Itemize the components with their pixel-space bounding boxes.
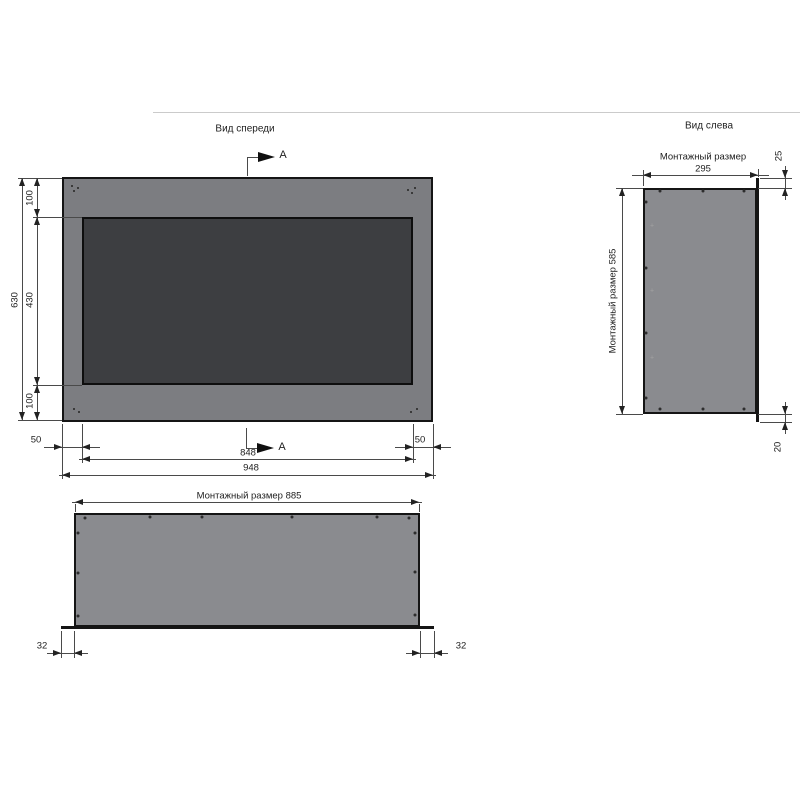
arrowhead (53, 650, 61, 656)
center-mark: + (650, 223, 654, 230)
screw-dot (408, 517, 411, 520)
dim-flange-right: 32 (456, 641, 467, 652)
screw-dot (149, 516, 152, 519)
arrowhead (75, 499, 83, 505)
arrowhead (619, 188, 625, 196)
dim-line-total-height (22, 178, 23, 420)
mount-depth-value: 295 (695, 164, 711, 175)
arrowhead (34, 385, 40, 393)
screw-mark (410, 411, 412, 413)
dim-bottom-offset: 20 (773, 442, 784, 453)
arrowhead (643, 172, 651, 178)
front-view-title: Вид спереди (215, 124, 274, 135)
dim-total-height: 630 (10, 292, 21, 308)
screw-dot (645, 201, 648, 204)
ext-line (75, 504, 76, 512)
arrowhead (411, 499, 419, 505)
arrowhead (782, 170, 788, 178)
screw-dot (702, 408, 705, 411)
screw-dot (77, 615, 80, 618)
arrowhead (19, 178, 25, 186)
screw-mark (73, 190, 75, 192)
center-mark: + (650, 288, 654, 295)
screw-dot (414, 571, 417, 574)
arrowhead (782, 188, 788, 196)
ext-line (758, 169, 759, 177)
screw-dot (414, 532, 417, 535)
dim-top-offset: 25 (774, 151, 785, 162)
dim-total-width: 948 (243, 463, 259, 474)
ext-line (433, 424, 434, 479)
arrowhead (34, 412, 40, 420)
screw-dot (659, 190, 662, 193)
arrowhead (74, 650, 82, 656)
arrowhead (433, 444, 441, 450)
dim-line-border-right (395, 447, 451, 448)
ext-line (760, 178, 792, 179)
dim-line-mount-depth (632, 175, 769, 176)
arrowhead (34, 217, 40, 225)
screw-mark (71, 185, 73, 187)
arrowhead (34, 178, 40, 186)
arrowhead (782, 406, 788, 414)
ext-line (62, 424, 63, 479)
screw-dot (291, 516, 294, 519)
ext-line (758, 414, 792, 415)
arrowhead (412, 650, 420, 656)
screw-dot (376, 516, 379, 519)
ext-line (33, 385, 82, 386)
left-view-body (643, 188, 757, 414)
dim-line-total-width (59, 475, 436, 476)
screw-dot (77, 572, 80, 575)
screw-mark (73, 408, 75, 410)
firebox-opening (82, 217, 413, 385)
screw-mark (407, 189, 409, 191)
section-arrow-icon (257, 443, 274, 453)
bottom-view-flange (61, 626, 434, 629)
arrowhead (62, 472, 70, 478)
frame-line (153, 112, 800, 113)
screw-dot (201, 516, 204, 519)
ext-line (33, 217, 82, 218)
screw-mark (411, 192, 413, 194)
technical-drawing-canvas: Вид спереди A 100 430 630 100 50 (0, 0, 800, 800)
screw-dot (414, 614, 417, 617)
bottom-view-body (74, 513, 420, 627)
ext-line (616, 414, 643, 415)
section-label-bottom: A (278, 441, 285, 453)
screw-mark (414, 187, 416, 189)
dim-line-border-left (44, 447, 100, 448)
screw-dot (645, 267, 648, 270)
mount-depth-label: Монтажный размер (660, 152, 746, 163)
screw-dot (743, 190, 746, 193)
section-label-top: A (279, 149, 286, 161)
screw-dot (77, 532, 80, 535)
dim-flange-left: 32 (37, 641, 48, 652)
arrowhead (619, 406, 625, 414)
dim-mount-height: Монтажный размер 585 (608, 249, 619, 354)
arrowhead (54, 444, 62, 450)
arrowhead (82, 456, 90, 462)
arrowhead (782, 422, 788, 430)
dim-opening-height: 430 (25, 292, 36, 308)
screw-dot (659, 408, 662, 411)
screw-dot (743, 408, 746, 411)
dim-right-border: 50 (415, 435, 426, 446)
section-arrow-icon (258, 152, 275, 162)
screw-mark (78, 411, 80, 413)
dim-left-border: 50 (31, 435, 42, 446)
arrowhead (434, 650, 442, 656)
ext-line (18, 420, 62, 421)
arrowhead (405, 444, 413, 450)
screw-dot (702, 190, 705, 193)
ext-line (419, 504, 420, 512)
screw-dot (645, 332, 648, 335)
ext-line (643, 170, 644, 186)
arrowhead (34, 209, 40, 217)
arrowhead (425, 472, 433, 478)
screw-dot (645, 397, 648, 400)
dim-top-border: 100 (25, 190, 36, 206)
dim-opening-width: 848 (240, 448, 256, 459)
section-line-bottom-h (246, 448, 257, 449)
dim-mount-width-label: Монтажный размер 885 (197, 491, 302, 502)
dim-line-mount-height (622, 188, 623, 414)
section-line-bottom (246, 428, 247, 448)
screw-dot (84, 517, 87, 520)
dim-line-opening-width (79, 459, 416, 460)
left-view-title: Вид слева (685, 121, 733, 132)
center-mark: + (650, 355, 654, 362)
screw-mark (416, 408, 418, 410)
arrowhead (82, 444, 90, 450)
dim-bottom-border: 100 (25, 393, 36, 409)
left-view-flange (756, 178, 759, 422)
arrowhead (19, 412, 25, 420)
section-line-top (247, 157, 248, 176)
arrowhead (405, 456, 413, 462)
section-line-top-h (247, 157, 258, 158)
dim-line-mount-width (72, 502, 422, 503)
arrowhead (34, 377, 40, 385)
screw-mark (77, 187, 79, 189)
